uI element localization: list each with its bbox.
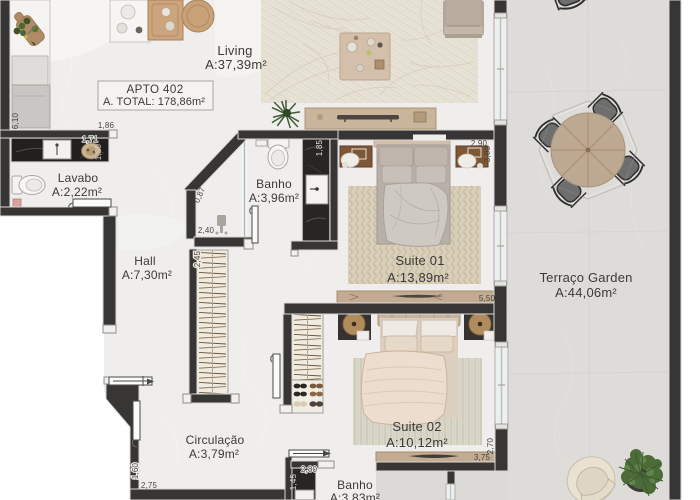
svg-text:Suite 02: Suite 02 [392,419,441,434]
svg-text:Lavabo: Lavabo [58,171,99,185]
svg-text:2,75: 2,75 [141,481,158,490]
svg-text:Terraço Garden: Terraço Garden [539,270,632,285]
svg-text:A:3,79m²: A:3,79m² [189,447,239,461]
svg-text:A:3,83m²: A:3,83m² [330,491,380,500]
svg-text:A:2,22m²: A:2,22m² [52,185,102,199]
svg-text:Suite 01: Suite 01 [395,253,444,268]
svg-text:A:44,06m²: A:44,06m² [555,285,617,300]
svg-text:Banho: Banho [256,177,292,191]
svg-text:Circulação: Circulação [186,433,245,447]
svg-text:1,86: 1,86 [98,121,115,130]
svg-text:A:10,12m²: A:10,12m² [386,435,448,450]
svg-text:5,50: 5,50 [479,294,496,303]
svg-text:1,50: 1,50 [94,143,103,160]
svg-text:A:37,39m²: A:37,39m² [205,57,267,72]
svg-text:A:13,89m²: A:13,89m² [387,270,449,285]
svg-text:3,00: 3,00 [483,145,492,162]
svg-text:2,80: 2,80 [301,465,318,474]
svg-text:A:7,30m²: A:7,30m² [122,268,172,282]
svg-text:2,45: 2,45 [193,250,202,267]
svg-text:A:3,96m²: A:3,96m² [249,191,299,205]
svg-text:2,70: 2,70 [486,437,495,454]
svg-text:1,60: 1,60 [131,462,140,479]
svg-text:1,45: 1,45 [289,473,298,490]
svg-text:A. TOTAL: 178,86m²: A. TOTAL: 178,86m² [103,96,205,108]
svg-text:Banho: Banho [337,478,373,492]
svg-text:3,75: 3,75 [474,453,491,462]
svg-text:Living: Living [217,43,252,58]
svg-text:2,40: 2,40 [198,226,215,235]
svg-text:1,71: 1,71 [82,135,99,144]
svg-text:APTO 402: APTO 402 [126,83,183,96]
svg-text:6,10: 6,10 [11,112,20,129]
svg-text:1,85: 1,85 [315,139,324,156]
svg-text:Hall: Hall [134,254,155,268]
